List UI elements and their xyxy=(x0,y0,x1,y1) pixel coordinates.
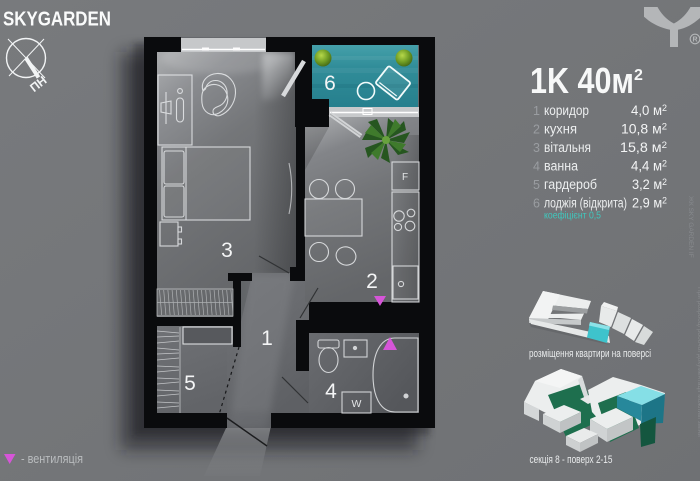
svg-text:гардероб: гардероб xyxy=(544,177,597,192)
svg-text:- вентиляція: - вентиляція xyxy=(21,452,83,466)
svg-text:коефіцієнт 0,5: коефіцієнт 0,5 xyxy=(544,210,601,222)
svg-text:секція 8 - поверх 2-15: секція 8 - поверх 2-15 xyxy=(530,454,613,466)
svg-text:3,2 м2: 3,2 м2 xyxy=(632,176,667,192)
svg-text:1K 40м: 1K 40м xyxy=(530,60,634,101)
svg-text:1: 1 xyxy=(533,104,540,118)
svg-text:4: 4 xyxy=(325,380,337,403)
svg-text:SKYGARDEN: SKYGARDEN xyxy=(3,9,111,31)
svg-text:W: W xyxy=(352,398,362,410)
svg-text:3: 3 xyxy=(221,239,233,262)
svg-text:розміщення квартири на поверсі: розміщення квартири на поверсі xyxy=(529,348,651,360)
svg-text:4,4 м2: 4,4 м2 xyxy=(631,158,667,174)
svg-text:2: 2 xyxy=(533,123,540,137)
svg-text:вітальня: вітальня xyxy=(544,140,591,155)
svg-text:2: 2 xyxy=(634,67,643,84)
svg-text:2,9 м2: 2,9 м2 xyxy=(632,195,667,211)
svg-text:кухня: кухня xyxy=(544,122,577,137)
svg-text:коридор: коридор xyxy=(544,103,589,118)
svg-text:4,0 м2: 4,0 м2 xyxy=(631,102,667,118)
svg-text:При розробці робочої документа: При розробці робочої документації можлив… xyxy=(696,287,700,437)
svg-text:ЖК SKY GARDEN IF: ЖК SKY GARDEN IF xyxy=(687,196,694,258)
svg-text:R: R xyxy=(692,37,697,44)
svg-text:5: 5 xyxy=(184,372,196,395)
svg-text:3: 3 xyxy=(533,141,540,155)
svg-text:10,8 м2: 10,8 м2 xyxy=(621,121,667,137)
svg-text:6: 6 xyxy=(324,72,336,95)
svg-text:4: 4 xyxy=(533,160,540,174)
svg-text:лоджія (відкрита): лоджія (відкрита) xyxy=(544,196,627,211)
svg-text:ванна: ванна xyxy=(544,159,578,174)
svg-text:5: 5 xyxy=(533,178,540,192)
svg-text:2: 2 xyxy=(366,270,378,293)
svg-text:1: 1 xyxy=(261,327,273,350)
svg-text:F: F xyxy=(402,172,408,183)
svg-text:6: 6 xyxy=(533,197,540,211)
svg-text:15,8 м2: 15,8 м2 xyxy=(620,139,667,155)
